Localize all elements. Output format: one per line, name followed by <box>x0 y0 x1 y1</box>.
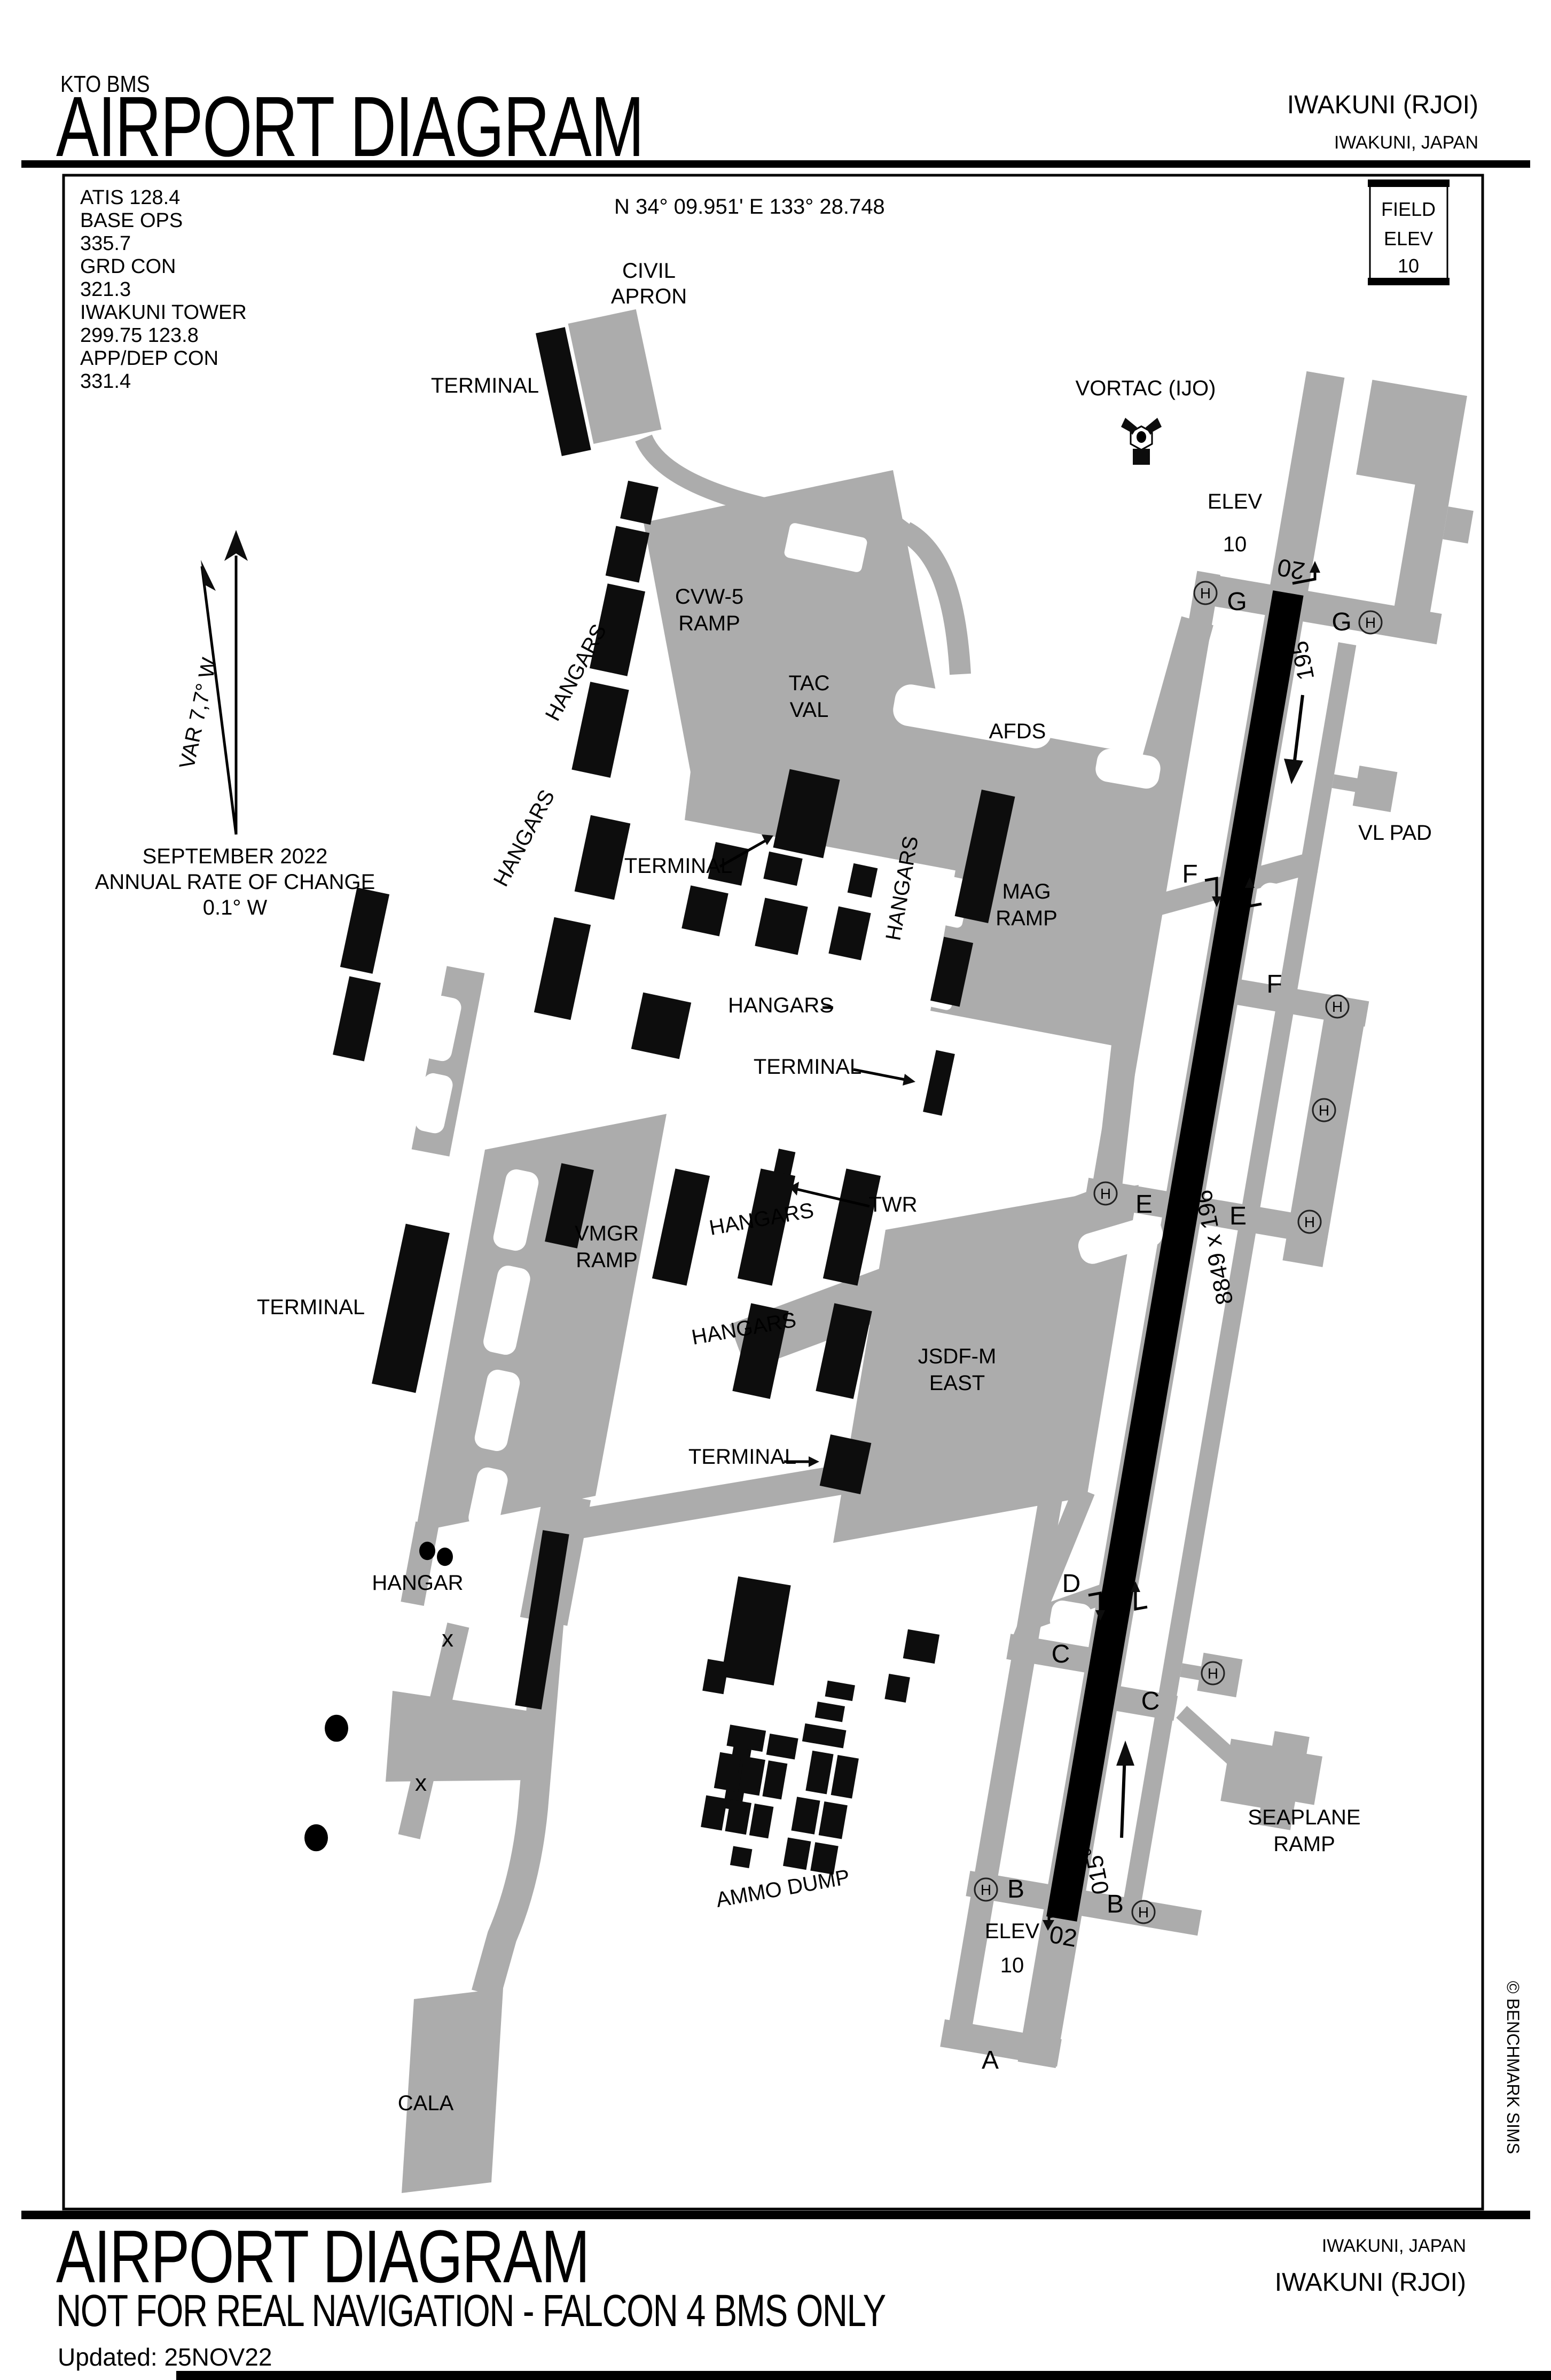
svg-text:H: H <box>981 1882 991 1898</box>
map-label-tac: TAC <box>788 672 829 695</box>
map-label-terminal: TERMINAL <box>624 854 732 878</box>
helipad-icon: H <box>1326 995 1349 1018</box>
map-label-cala: CALA <box>398 2092 454 2115</box>
comm-line-atis: ATIS 128.4 <box>80 186 180 209</box>
map-label-b: B <box>1107 1890 1124 1918</box>
comm-box: ATIS 128.4 BASE OPS 335.7 GRD CON 321.3 … <box>80 186 247 393</box>
map-label-g: G <box>1331 608 1351 636</box>
footer-updated: Updated: 25NOV22 <box>58 2343 272 2371</box>
map-label-hangars: HANGARS <box>489 786 560 890</box>
svg-text:H: H <box>1319 1102 1329 1119</box>
helipad-icon: H <box>1202 1662 1224 1684</box>
map-label-f: F <box>1182 860 1197 888</box>
map-label-10: 10 <box>1223 533 1247 556</box>
map-label-val: VAL <box>790 698 829 722</box>
comm-line-appdep-freq: 331.4 <box>80 370 131 393</box>
map-label-september-2022: SEPTEMBER 2022 <box>143 845 328 868</box>
comm-line-appdep: APP/DEP CON <box>80 347 218 370</box>
helipad-icon: H <box>1194 582 1217 604</box>
svg-text:H: H <box>1304 1214 1315 1230</box>
comm-line-baseops-freq: 335.7 <box>80 232 131 255</box>
map-label-a: A <box>982 2046 999 2074</box>
airport-diagram-map: KTO BMS AIRPORT DIAGRAM IWAKUNI (RJOI) I… <box>0 0 1551 2380</box>
map-label-terminal: TERMINAL <box>431 374 539 397</box>
map-label-g: G <box>1227 588 1247 616</box>
map-label-terminal: TERMINAL <box>754 1055 861 1079</box>
map-label-var-7-7-w: VAR 7,7° W <box>175 656 222 771</box>
comm-line-tower: IWAKUNI TOWER <box>80 301 247 324</box>
helipad-icon: H <box>1359 611 1382 634</box>
magnetic-north-arrowhead <box>201 560 216 591</box>
map-dot <box>304 1824 328 1852</box>
field-elev-box: FIELD ELEV 10 <box>1368 180 1450 285</box>
header-airport: IWAKUNI (RJOI) <box>1287 91 1478 119</box>
map-label-c: C <box>1141 1687 1160 1715</box>
footer-location: IWAKUNI, JAPAN <box>1322 2236 1466 2256</box>
helipad-icon: H <box>1132 1901 1155 1923</box>
field-elev-value: 10 <box>1398 255 1419 277</box>
terminal-building-mid <box>923 1050 955 1116</box>
comm-line-grdcon-freq: 321.3 <box>80 278 131 301</box>
page-title: AIRPORT DIAGRAM <box>56 79 644 174</box>
ammo-dump-layer <box>674 1574 943 1893</box>
map-label-ramp: RAMP <box>678 612 740 635</box>
bottom-bar <box>176 2371 1551 2380</box>
civil-apron-group <box>535 309 663 456</box>
map-label-apron: APRON <box>611 285 687 308</box>
airport-diagram-page: { "header": { "chart_code": "KTO BMS", "… <box>0 0 1551 2380</box>
svg-text:H: H <box>1138 1904 1149 1921</box>
map-label-ramp: RAMP <box>996 907 1057 930</box>
svg-text:H: H <box>1332 998 1343 1015</box>
map-label-terminal: TERMINAL <box>257 1296 365 1319</box>
closed-taxiway-x-icon: x <box>415 1770 427 1796</box>
header: KTO BMS AIRPORT DIAGRAM IWAKUNI (RJOI) I… <box>56 71 1478 174</box>
map-label-20: 20 <box>1275 553 1307 586</box>
map-label-annual-rate-of-change: ANNUAL RATE OF CHANGE <box>95 870 375 894</box>
svg-text:H: H <box>1208 1665 1218 1682</box>
map-label-02: 02 <box>1047 1920 1079 1952</box>
header-location: IWAKUNI, JAPAN <box>1334 132 1478 153</box>
map-label-vmgr: VMGR <box>575 1222 639 1245</box>
map-label-seaplane: SEAPLANE <box>1248 1806 1360 1829</box>
comm-line-grdcon: GRD CON <box>80 255 176 278</box>
svg-text:H: H <box>1200 585 1211 602</box>
map-label-f: F <box>1266 970 1282 998</box>
field-elev-line2: ELEV <box>1384 228 1433 249</box>
helipad-icon: H <box>1313 1099 1335 1121</box>
map-dot <box>325 1715 348 1742</box>
map-label-vortac-ijo-: VORTAC (IJO) <box>1076 377 1216 400</box>
map-label-ramp: RAMP <box>1273 1832 1335 1856</box>
map-label-twr: TWR <box>868 1193 917 1216</box>
map-label-10: 10 <box>1000 1954 1024 1977</box>
map-label-mag: MAG <box>1002 880 1051 903</box>
svg-text:H: H <box>1365 614 1376 631</box>
map-label-hangar: HANGAR <box>372 1571 463 1595</box>
helipad-icon: H <box>1094 1182 1117 1205</box>
map-label-civil: CIVIL <box>622 259 676 283</box>
comm-line-baseops: BASE OPS <box>80 209 183 232</box>
map-label-elev: ELEV <box>1208 490 1263 513</box>
map-label-e: E <box>1135 1190 1153 1219</box>
map-label-c: C <box>1052 1640 1070 1668</box>
map-label-e: E <box>1229 1202 1247 1230</box>
footer: AIRPORT DIAGRAM NOT FOR REAL NAVIGATION … <box>56 2214 1466 2371</box>
map-label-ramp: RAMP <box>576 1248 638 1272</box>
map-dot <box>437 1548 453 1566</box>
helipad-icon: H <box>1298 1211 1321 1233</box>
airport-position: N 34° 09.951' E 133° 28.748 <box>614 195 885 219</box>
map-label-cvw-5: CVW-5 <box>675 585 743 608</box>
map-label-b: B <box>1007 1875 1024 1903</box>
map-label-east: EAST <box>929 1371 985 1395</box>
comm-line-tower-freq: 299.75 123.8 <box>80 324 199 347</box>
map-label-d: D <box>1062 1570 1081 1598</box>
map-label-afds: AFDS <box>989 720 1046 743</box>
footer-disclaimer: NOT FOR REAL NAVIGATION - FALCON 4 BMS O… <box>56 2285 886 2336</box>
footer-airport: IWAKUNI (RJOI) <box>1275 2268 1466 2297</box>
vortac-symbol <box>1121 418 1162 465</box>
helipad-icon: H <box>975 1878 997 1901</box>
svg-text:H: H <box>1100 1185 1111 1202</box>
terminal-building-west <box>372 1224 450 1393</box>
map-label-hangars: HANGARS <box>728 994 834 1017</box>
map-label-vl-pad: VL PAD <box>1358 821 1432 845</box>
map-label-terminal: TERMINAL <box>688 1445 796 1469</box>
copyright-text: © BENCHMARK SIMS <box>1503 1981 1523 2154</box>
map-label-jsdf-m: JSDF-M <box>918 1345 997 1368</box>
map-dot <box>419 1542 435 1560</box>
field-elev-line1: FIELD <box>1381 198 1436 220</box>
map-label-0-1-w: 0.1° W <box>203 896 268 919</box>
closed-taxiway-x-icon: x <box>442 1626 453 1652</box>
map-label-elev: ELEV <box>985 1919 1040 1943</box>
map-label-ammo-dump: AMMO DUMP <box>714 1866 851 1912</box>
